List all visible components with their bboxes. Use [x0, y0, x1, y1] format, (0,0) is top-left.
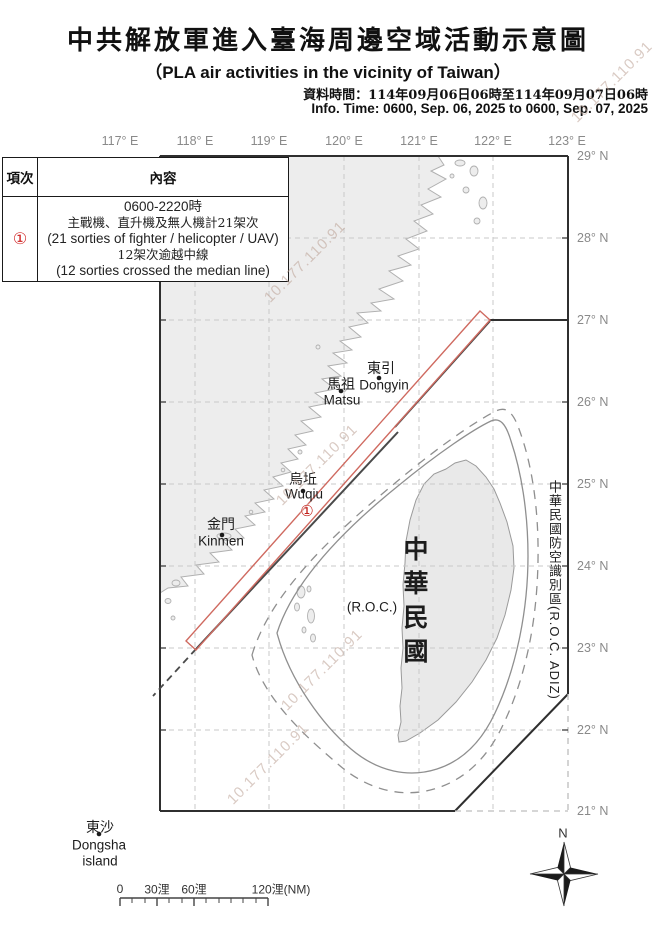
page-title: 中共解放軍進入臺海周邊空域活動示意圖: [0, 20, 656, 57]
median-crossing-en: (12 sorties crossed the median line): [56, 263, 270, 279]
page-subtitle: （PLA air activities in the vicinity of T…: [0, 58, 656, 83]
scale-bar: [120, 898, 268, 906]
lon-label-121e: 121° E: [400, 134, 438, 148]
adiz-vertical-label: 中華民國防空識別區(R.O.C. ADIZ): [545, 480, 564, 748]
activity-marker-1: ①: [300, 502, 313, 520]
table-header-content: 內容: [38, 158, 288, 196]
penghu-islands: [295, 586, 316, 642]
dongsha-label-zh: 東沙: [86, 817, 114, 837]
median-crossing-zh: 12架次逾越中線: [118, 247, 209, 263]
dongyin-label-zh: 東引: [367, 358, 395, 378]
pla-activity-map-page: 中共解放軍進入臺海周邊空域活動示意圖 （PLA air activities i…: [0, 0, 656, 948]
sorties-en: (21 sorties of fighter / helicopter / UA…: [47, 231, 279, 247]
scalebar-label-0: 0: [117, 882, 124, 896]
lat-label-27n: 27° N: [577, 313, 608, 327]
matsu-label-en: Matsu: [324, 393, 361, 408]
sorties-zh: 主戰機、直升機及無人機計21架次: [68, 215, 259, 231]
lon-label-120e: 120° E: [325, 134, 363, 148]
kinmen-label-en: Kinmen: [198, 534, 244, 549]
compass-north-label: N: [558, 826, 567, 841]
dongsha-label-en: Dongsha: [72, 838, 126, 853]
wuqiu-label-en: Wuqiu: [285, 487, 323, 502]
lat-label-21n: 21° N: [577, 804, 608, 818]
activity-summary-table: 項次 內容 ① 0600-2220時 主戰機、直升機及無人機計21架次 (21 …: [2, 157, 289, 282]
matsu-label-zh: 馬祖: [327, 374, 355, 394]
scalebar-label-60: 60浬: [181, 881, 206, 898]
scalebar-label-120: 120浬(NM): [252, 881, 311, 898]
lat-label-25n: 25° N: [577, 477, 608, 491]
scalebar-label-30: 30浬: [144, 881, 169, 898]
table-header-row: 項次 內容: [3, 158, 288, 197]
table-row: ① 0600-2220時 主戰機、直升機及無人機計21架次 (21 sortie…: [3, 197, 288, 281]
lat-label-24n: 24° N: [577, 559, 608, 573]
lon-label-123e: 123° E: [548, 134, 586, 148]
info-time-en: Info. Time: 0600, Sep. 06, 2025 to 0600,…: [311, 101, 648, 116]
dongsha-island-label: island: [82, 854, 117, 869]
table-header-item: 項次: [3, 158, 38, 196]
lat-label-23n: 23° N: [577, 641, 608, 655]
kinmen-label-zh: 金門: [207, 514, 235, 534]
compass-rose-icon: [530, 842, 598, 906]
lat-label-29n: 29° N: [577, 149, 608, 163]
roc-paren-label: (R.O.C.): [347, 600, 397, 615]
lon-label-119e: 119° E: [251, 134, 288, 148]
lat-label-28n: 28° N: [577, 231, 608, 245]
table-row-number: ①: [3, 197, 38, 281]
lat-label-22n: 22° N: [577, 723, 608, 737]
lat-label-26n: 26° N: [577, 395, 608, 409]
lon-label-122e: 122° E: [474, 134, 512, 148]
table-row-content: 0600-2220時 主戰機、直升機及無人機計21架次 (21 sorties …: [38, 197, 288, 281]
activity-time: 0600-2220時: [124, 199, 202, 215]
lon-label-118e: 118° E: [177, 134, 214, 148]
dongyin-label-en: Dongyin: [359, 378, 409, 393]
roc-vertical-label: 中華民國: [396, 536, 432, 678]
lon-label-117e: 117° E: [102, 134, 139, 148]
